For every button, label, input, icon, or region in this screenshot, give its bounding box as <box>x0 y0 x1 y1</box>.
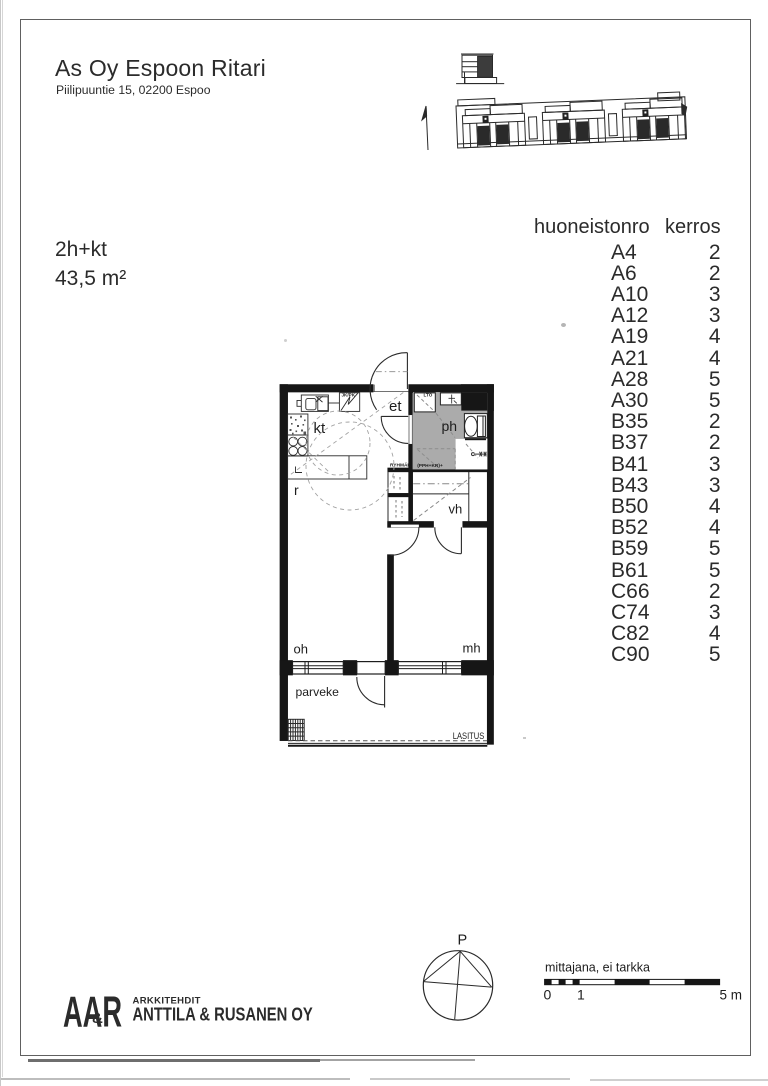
svg-text:mittajana, ei tarkka: mittajana, ei tarkka <box>545 961 650 975</box>
svg-text:LASITUS: LASITUS <box>453 731 485 742</box>
svg-text:ph: ph <box>442 418 458 434</box>
svg-text:(PPH+KR)+: (PPH+KR)+ <box>417 463 443 469</box>
svg-text:r: r <box>294 482 299 498</box>
svg-text:5 m: 5 m <box>720 987 743 1002</box>
svg-text:LTO: LTO <box>424 393 433 398</box>
svg-text:JK/PK: JK/PK <box>342 392 356 397</box>
svg-text:kt: kt <box>314 420 327 437</box>
svg-text:P: P <box>458 932 468 948</box>
svg-text:vh: vh <box>449 502 463 517</box>
svg-text:ANTTILA & RUSANEN OY: ANTTILA & RUSANEN OY <box>133 1004 313 1025</box>
svg-text:&: & <box>92 1010 103 1027</box>
svg-text:RYHMÄK: RYHMÄK <box>390 462 411 469</box>
svg-text:et: et <box>389 398 402 415</box>
svg-text:parveke: parveke <box>296 685 340 699</box>
svg-text:0: 0 <box>544 986 552 1002</box>
svg-text:1: 1 <box>577 986 585 1002</box>
svg-text:mh: mh <box>463 641 481 656</box>
svg-text:oh: oh <box>294 642 308 657</box>
